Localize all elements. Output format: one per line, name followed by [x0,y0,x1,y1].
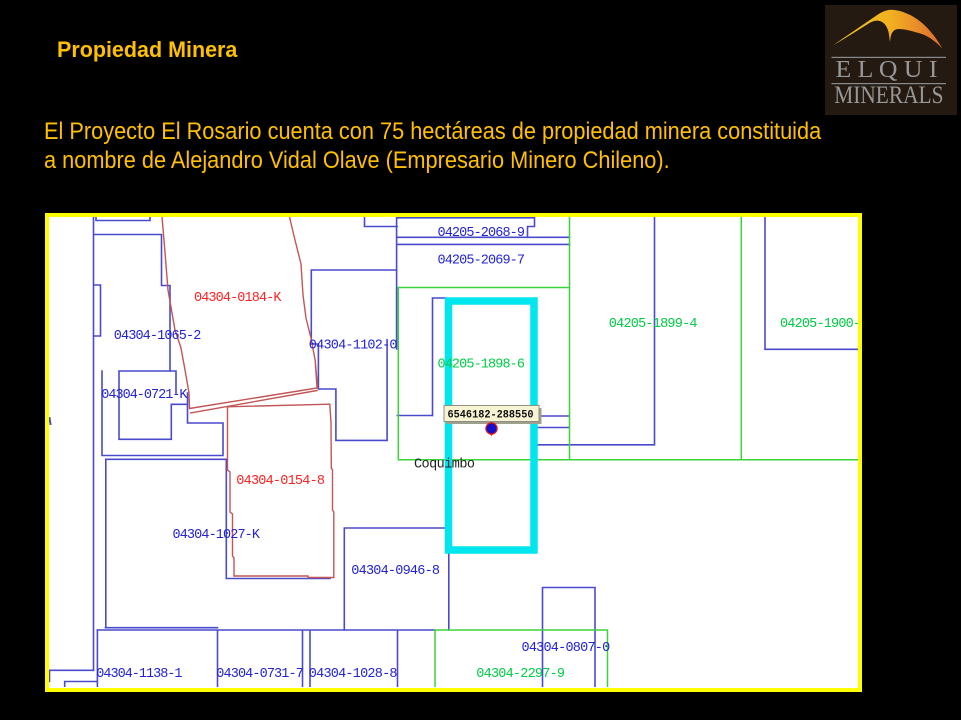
svg-text:04205-1900-: 04205-1900- [780,317,858,332]
svg-text:04205-1899-4: 04205-1899-4 [609,317,698,332]
svg-text:04205-2068-9: 04205-2068-9 [438,226,526,241]
svg-text:04205-2069-7: 04205-2069-7 [438,253,526,268]
svg-text:04205-1898-6: 04205-1898-6 [438,358,526,373]
svg-text:04304-0807-0: 04304-0807-0 [522,641,611,656]
svg-text:04304-1065-2: 04304-1065-2 [114,329,202,344]
svg-text:Coquimbo: Coquimbo [414,458,475,473]
svg-text:04304-2297-9: 04304-2297-9 [476,667,565,682]
svg-text:04304-1027-K: 04304-1027-K [173,528,261,543]
svg-text:MINERALS: MINERALS [834,80,943,109]
svg-text:04304-0184-K: 04304-0184-K [194,291,282,306]
svg-text:04304-1138-1: 04304-1138-1 [96,667,182,682]
svg-text:04304-0154-8: 04304-0154-8 [236,474,325,489]
svg-text:04304-1028-8: 04304-1028-8 [309,667,398,682]
svg-text:6546182-288550: 6546182-288550 [448,410,534,422]
svg-text:04304-1102-0: 04304-1102-0 [309,338,398,353]
svg-text:04304-0731-7: 04304-0731-7 [216,667,303,682]
svg-text:04304-0946-8: 04304-0946-8 [351,564,440,579]
svg-text:04304-0721-K: 04304-0721-K [101,388,188,403]
